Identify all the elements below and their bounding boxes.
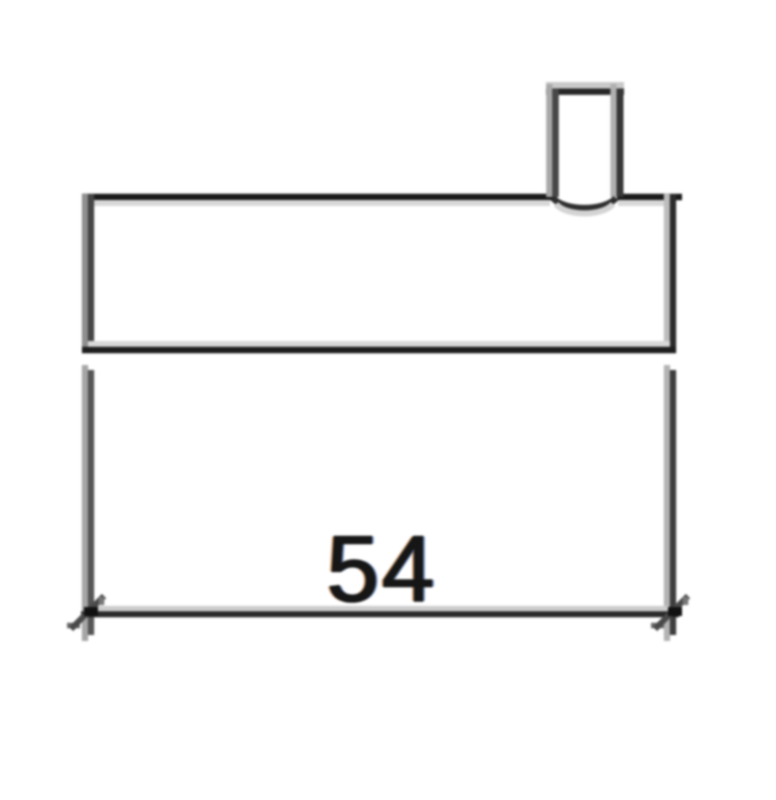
svg-text:54: 54 — [327, 516, 438, 621]
